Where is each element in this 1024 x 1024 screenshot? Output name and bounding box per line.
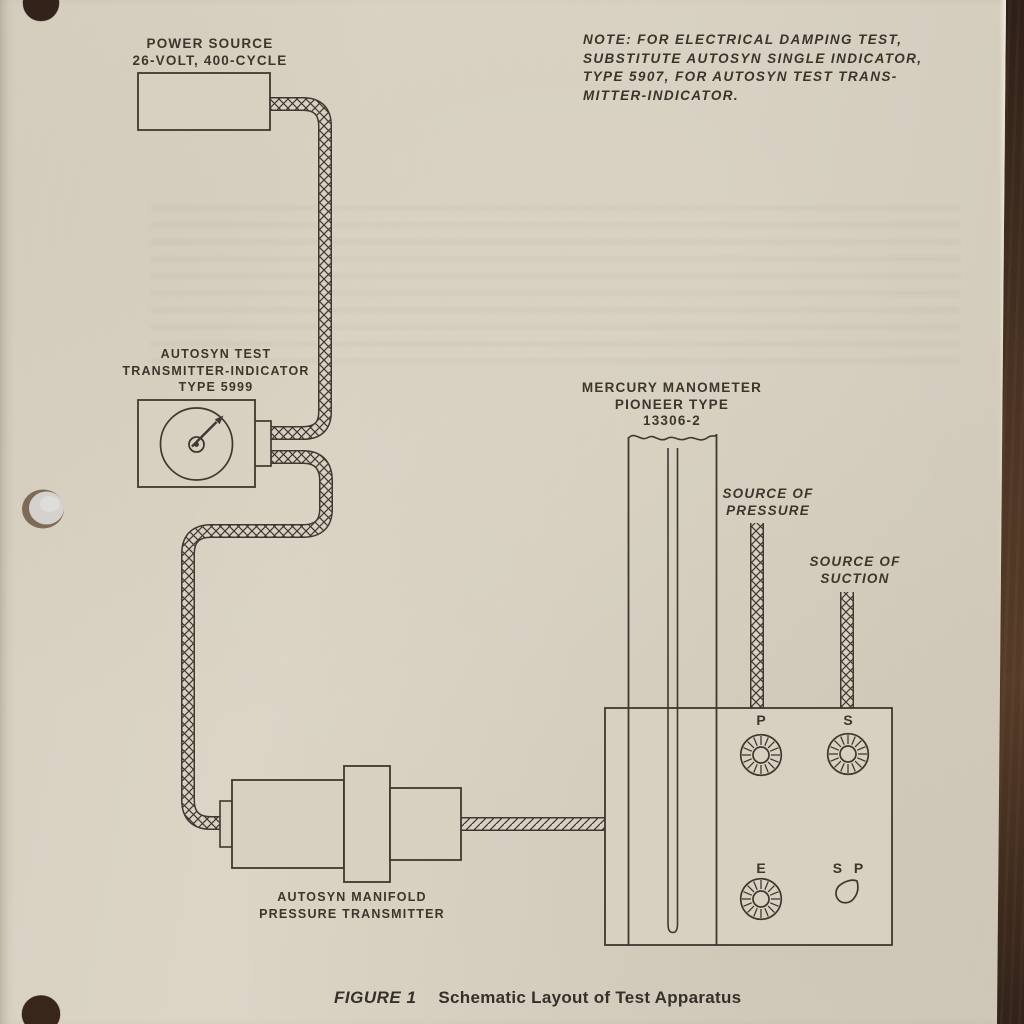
pressure-source-label-line: PRESSURE: [688, 503, 848, 520]
autosyn-indicator-label-line: TYPE 5999: [110, 379, 322, 396]
transmitter-body: [232, 780, 344, 868]
manometer-label-line: MERCURY MANOMETER: [567, 380, 777, 397]
suction-source-label-line: SUCTION: [775, 571, 935, 588]
punch-hole-top: [23, 0, 59, 21]
figure-number: FIGURE 1: [334, 988, 416, 1008]
note-line: MITTER-INDICATOR.: [583, 87, 922, 106]
note-line: TYPE 5907, FOR AUTOSYN TEST TRANS-: [583, 68, 922, 87]
manometer-label: MERCURY MANOMETER PIONEER TYPE 13306-2: [567, 380, 777, 430]
punch-hole-bottom: [22, 996, 60, 1024]
autosyn-indicator-label: AUTOSYN TEST TRANSMITTER-INDICATOR TYPE …: [110, 346, 322, 396]
control-box: [605, 708, 892, 945]
manometer-label-line: 13306-2: [567, 413, 777, 430]
transmitter-flange: [344, 766, 390, 882]
manometer-break-line: [629, 435, 717, 440]
knob-e-label: E: [746, 860, 776, 876]
suction-source-label-line: SOURCE OF: [775, 554, 935, 571]
note-block: NOTE: FOR ELECTRICAL DAMPING TEST, SUBST…: [583, 31, 922, 105]
pressure-source-label: SOURCE OF PRESSURE: [688, 486, 848, 519]
selector-label: S P: [826, 860, 870, 876]
manifold-transmitter-label-line: AUTOSYN MANIFOLD: [247, 889, 457, 906]
figure-title: Schematic Layout of Test Apparatus: [438, 988, 741, 1008]
manifold-transmitter-label-line: PRESSURE TRANSMITTER: [247, 906, 457, 923]
manifold-transmitter-label: AUTOSYN MANIFOLD PRESSURE TRANSMITTER: [247, 889, 457, 922]
photo-background: NOTE: FOR ELECTRICAL DAMPING TEST, SUBST…: [0, 0, 1024, 1024]
pressure-source-label-line: SOURCE OF: [688, 486, 848, 503]
power-source-label: POWER SOURCE 26-VOLT, 400-CYCLE: [105, 36, 315, 69]
power-source-label-line: 26-VOLT, 400-CYCLE: [105, 53, 315, 70]
schematic-diagram: [0, 0, 1024, 1024]
note-line: NOTE: FOR ELECTRICAL DAMPING TEST,: [583, 31, 922, 50]
transmitter-rear-section: [390, 788, 461, 860]
manifold-transmitter-unit: [220, 766, 461, 882]
autosyn-indicator-label-line: TRANSMITTER-INDICATOR: [110, 363, 322, 380]
manometer-label-line: PIONEER TYPE: [567, 397, 777, 414]
power-source-label-line: POWER SOURCE: [105, 36, 315, 53]
transmitter-connector: [220, 801, 232, 847]
indicator-to-transmitter-cable: [188, 457, 326, 823]
figure-caption: FIGURE 1 Schematic Layout of Test Appara…: [334, 988, 741, 1008]
autosyn-indicator-label-line: AUTOSYN TEST: [110, 346, 322, 363]
suction-source-label: SOURCE OF SUCTION: [775, 554, 935, 587]
punch-hole-middle: [22, 490, 64, 529]
note-line: SUBSTITUTE AUTOSYN SINGLE INDICATOR,: [583, 50, 922, 69]
indicator-connector: [254, 421, 272, 466]
power-source-box: [138, 73, 270, 130]
knob-p-label: P: [746, 712, 776, 728]
autosyn-indicator-unit: [138, 400, 271, 487]
knob-s-label: S: [833, 712, 863, 728]
